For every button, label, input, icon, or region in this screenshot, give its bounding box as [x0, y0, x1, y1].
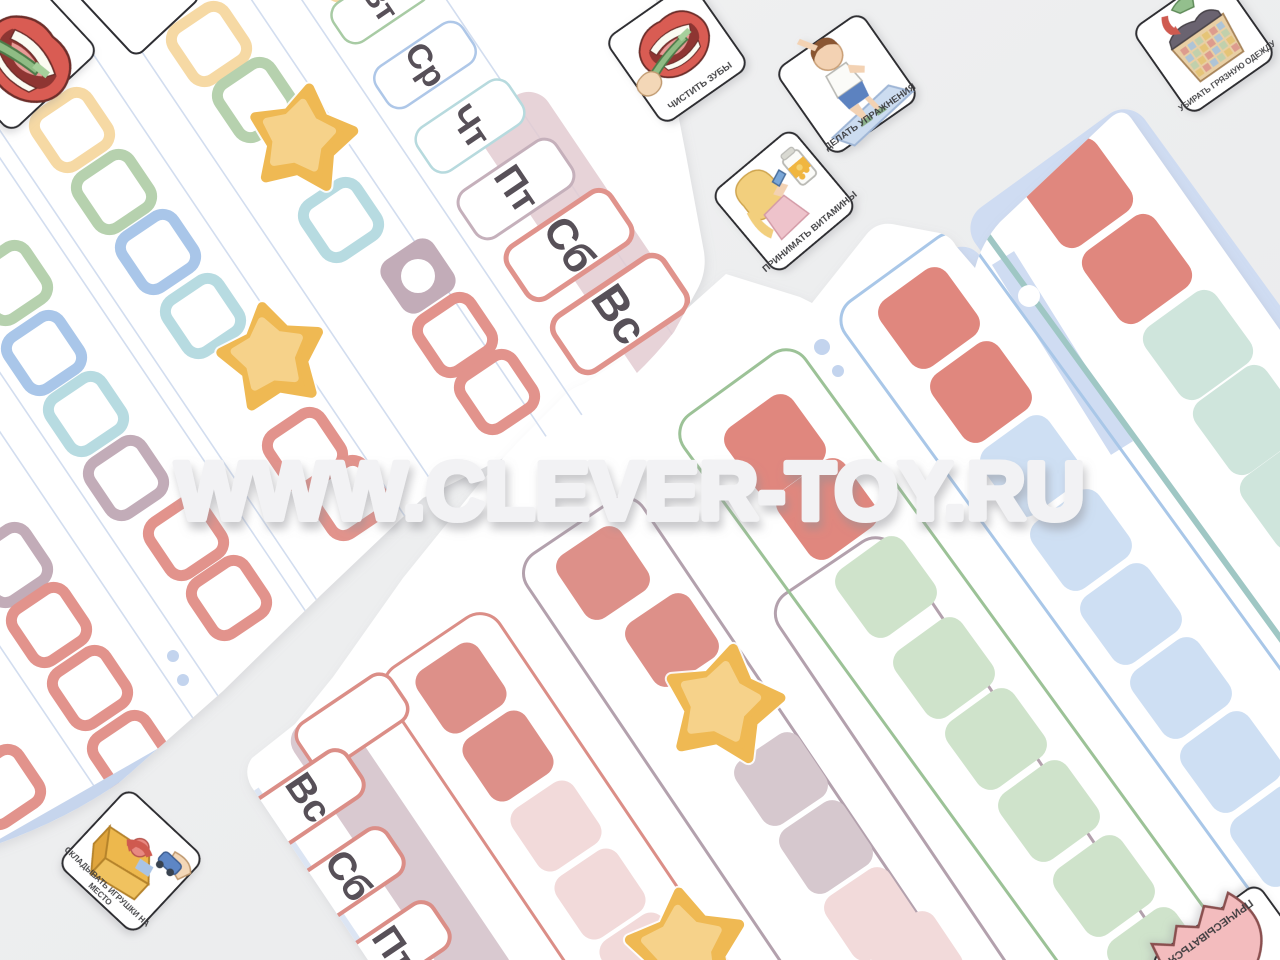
svg-text:WWW.CLEVER-TOY.RU: WWW.CLEVER-TOY.RU — [175, 446, 1085, 537]
